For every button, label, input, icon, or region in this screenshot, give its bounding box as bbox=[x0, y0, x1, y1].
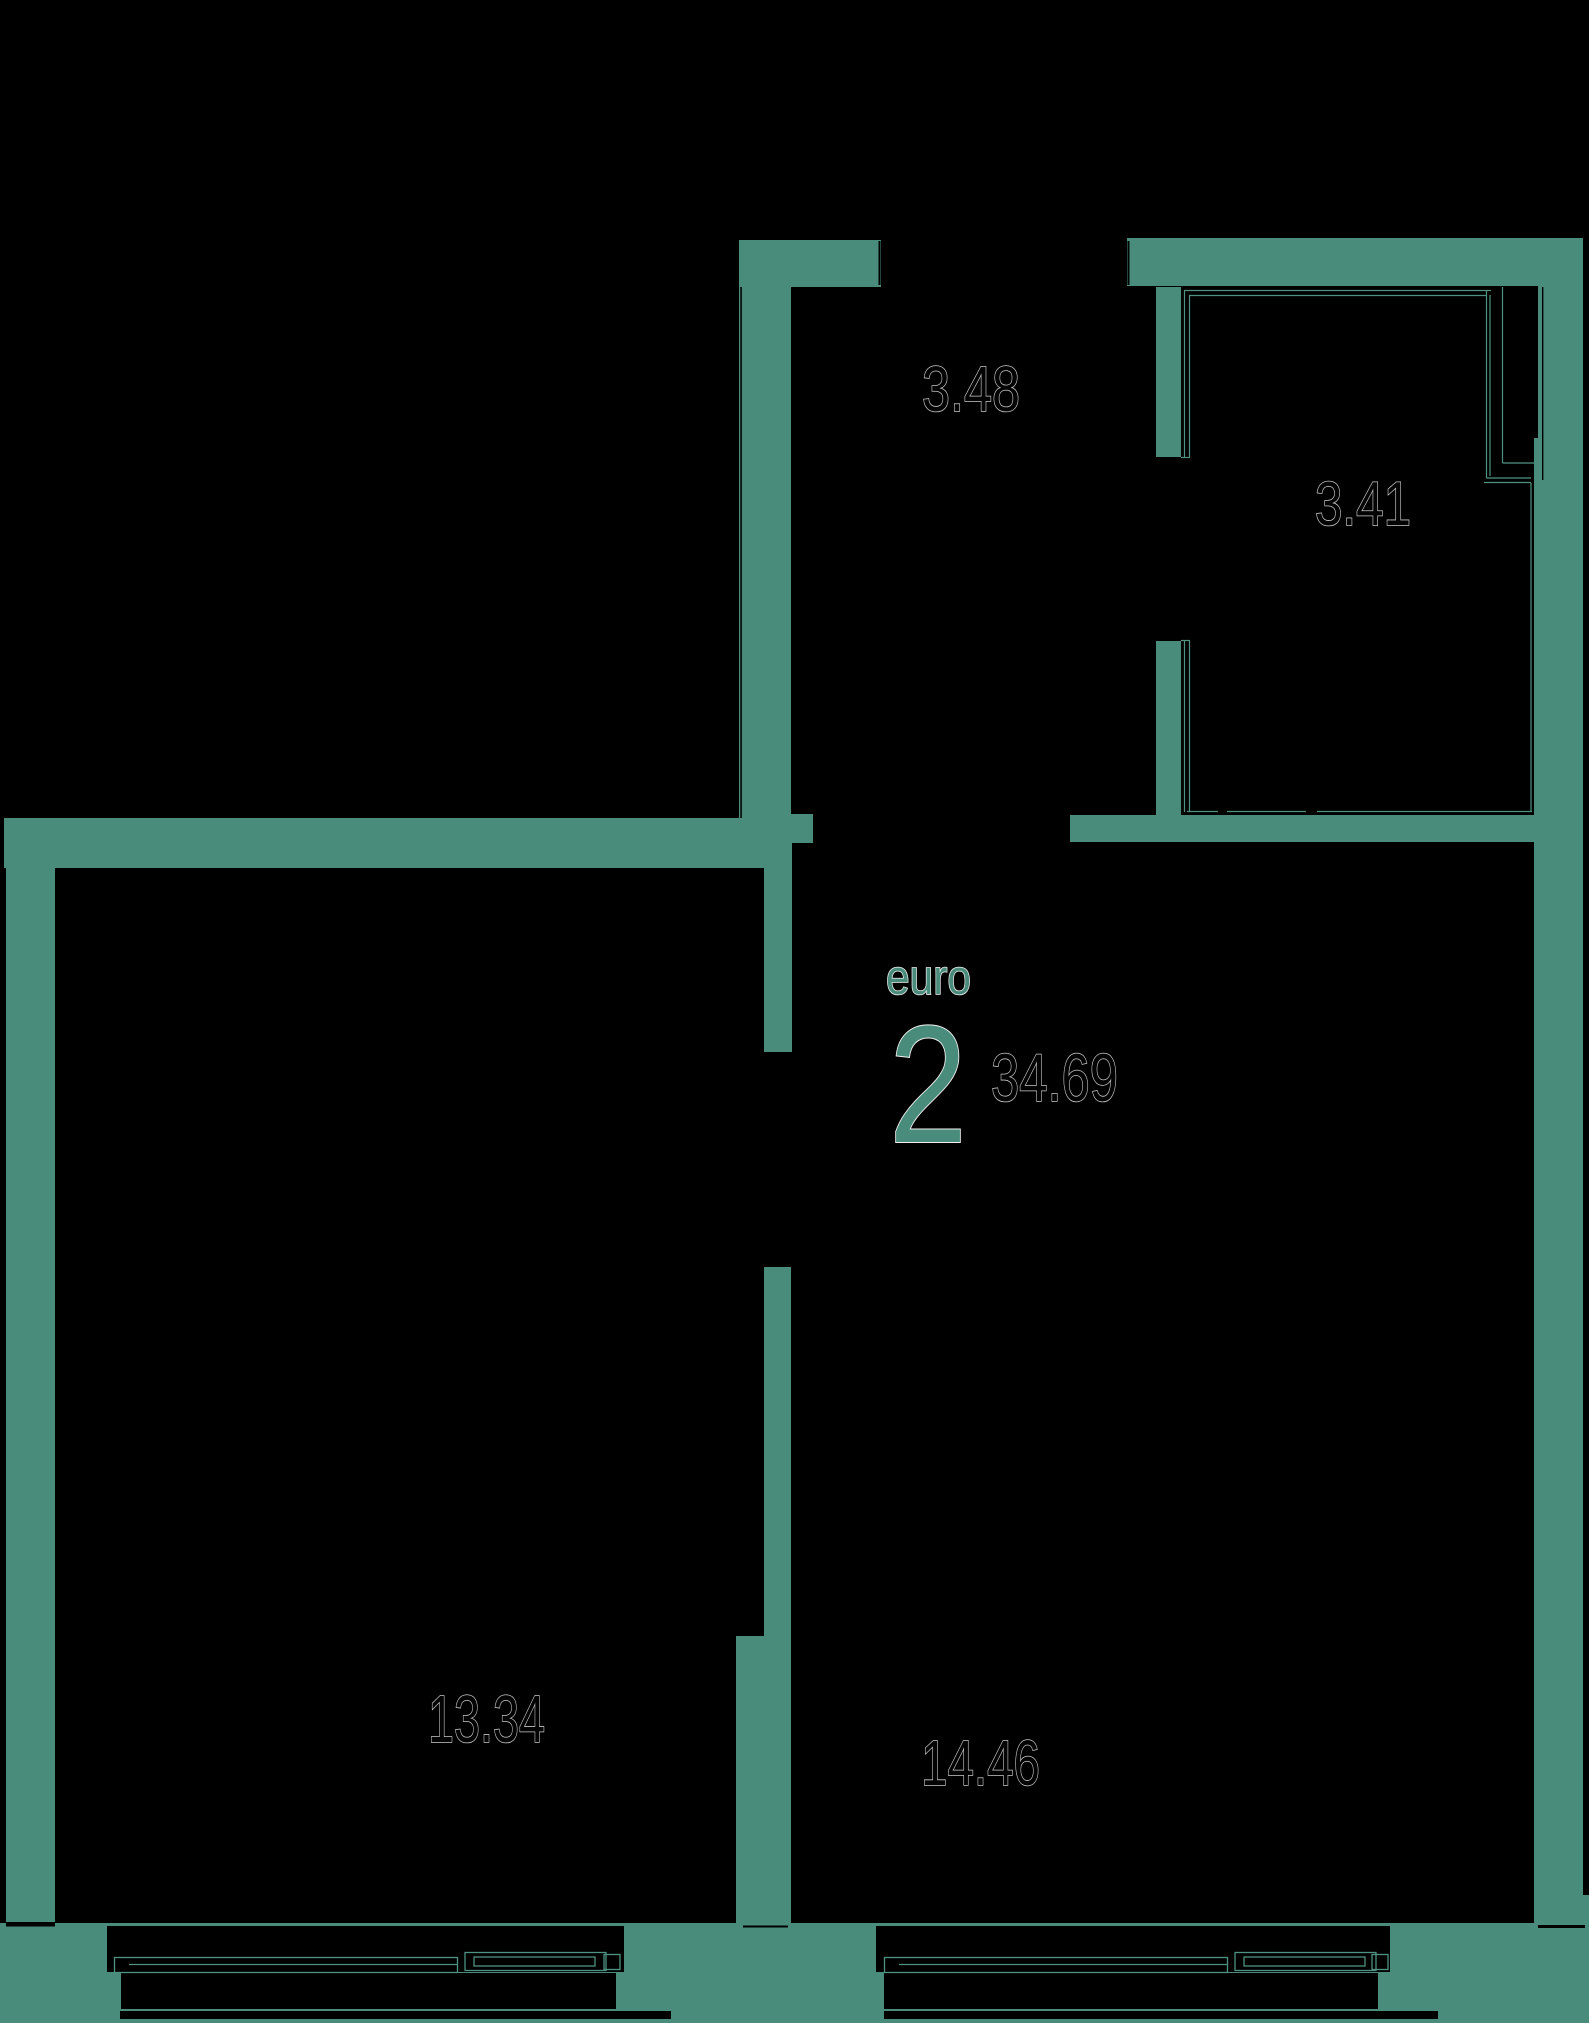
svg-text:2: 2 bbox=[889, 992, 967, 1178]
svg-text:13.34: 13.34 bbox=[428, 1682, 545, 1757]
svg-text:3.48: 3.48 bbox=[922, 353, 1020, 425]
svg-text:34.69: 34.69 bbox=[991, 1040, 1118, 1116]
svg-text:14.46: 14.46 bbox=[921, 1727, 1040, 1799]
svg-text:3.41: 3.41 bbox=[1315, 470, 1411, 539]
